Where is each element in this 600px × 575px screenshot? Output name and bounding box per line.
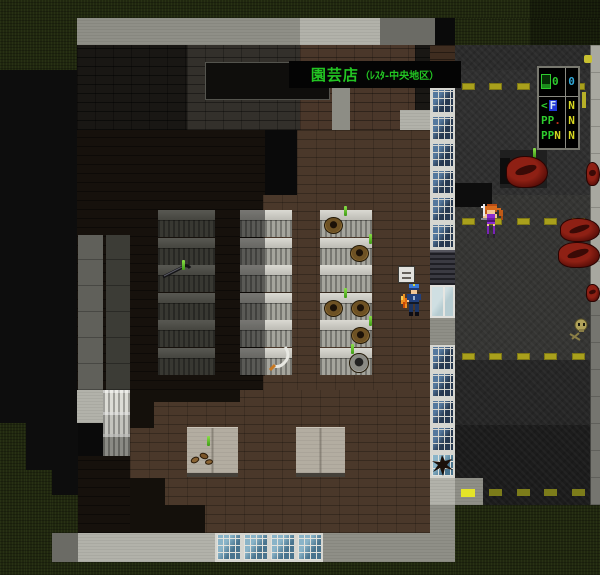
bottomleft-step-1	[26, 423, 78, 470]
hud-cursor: <	[541, 100, 548, 111]
sprout-icon	[344, 288, 347, 298]
corpse	[558, 242, 600, 268]
sickle-icon	[266, 344, 292, 372]
road-dash	[517, 83, 530, 90]
flower-pot-icon	[350, 245, 369, 262]
window-tile	[430, 169, 455, 196]
floor-shadow-3	[130, 478, 165, 533]
shelf-unit	[158, 320, 215, 347]
band-right	[323, 533, 455, 562]
shelf-unit	[158, 293, 215, 320]
hud-row-3: PP. N	[539, 113, 578, 128]
wall-col-concrete-low	[430, 478, 455, 505]
window-tile	[430, 196, 455, 223]
window-tile	[269, 533, 296, 562]
sprout-icon	[369, 316, 372, 326]
band-left	[78, 533, 215, 562]
sprout-icon	[182, 260, 185, 270]
hud-right-value-4: N	[565, 130, 578, 141]
broken-window-hole	[430, 453, 455, 478]
shelf-shadow-overlay	[240, 210, 265, 376]
skull-remains-icon	[566, 316, 592, 342]
window-tile	[296, 533, 323, 562]
grass-bl-4	[52, 562, 78, 575]
window-tile	[430, 115, 455, 142]
road-dash	[489, 83, 502, 90]
location-banner: 園芸店（ﾚｽﾀ-中央地区）	[289, 61, 461, 88]
wall-col-sliver	[430, 318, 455, 345]
hud-row-4: PPN N	[539, 128, 578, 143]
floor-shadow-4	[165, 505, 205, 533]
window-tile	[430, 426, 455, 453]
road-dash	[462, 218, 475, 225]
grass-bottom	[78, 562, 455, 575]
grass-topright-dark	[530, 0, 600, 47]
road-dash	[489, 353, 502, 360]
road-dash-dim	[544, 489, 557, 496]
wall-col-corner	[430, 505, 455, 533]
hud-row-2: <F N	[539, 98, 578, 113]
flower-pot-icon	[324, 217, 343, 234]
window-tile	[430, 88, 455, 115]
hud-left-value-4: PP	[541, 130, 554, 141]
shop-name: 園芸店	[311, 64, 359, 85]
bottomleft-step-2	[52, 470, 78, 495]
window-tile	[242, 533, 269, 562]
hud-divider-v	[565, 68, 566, 148]
seeds-icon	[189, 450, 217, 468]
entry-tile	[400, 110, 430, 132]
flower-pot-icon	[324, 300, 343, 317]
corpse	[506, 156, 548, 188]
placard-icon	[398, 266, 415, 283]
corpse	[560, 218, 600, 242]
npc-police-officer[interactable]	[401, 282, 427, 320]
hud-left-value-3: PP	[541, 115, 554, 126]
road-dash-lit	[461, 489, 475, 497]
hud-selected-cell: F	[549, 100, 558, 111]
corner-tile	[77, 390, 103, 423]
game-viewport[interactable]: 園芸店（ﾚｽﾀ-中央地区） 0 0 <F N PP. N PPN N	[0, 0, 600, 575]
window-tile	[430, 399, 455, 426]
hud-left-value-1: 0	[552, 76, 559, 87]
floor-dark-bottomleft	[77, 456, 130, 533]
grass-bl-2	[26, 470, 52, 575]
road-dash-dim	[489, 489, 502, 496]
road-dash	[544, 353, 557, 360]
window-tile	[215, 533, 242, 562]
hud-row-1: 0 0	[539, 68, 578, 95]
window-tile	[430, 223, 455, 250]
status-hud: 0 0 <F N PP. N PPN N	[537, 66, 580, 150]
player-character-sword-girl[interactable]	[477, 202, 505, 242]
broken-window	[430, 453, 455, 478]
road-low	[455, 360, 590, 425]
shelf-front-2	[103, 412, 130, 434]
window-tile	[430, 142, 455, 169]
crowbar-icon	[160, 262, 192, 280]
floor-shadow-1	[130, 390, 240, 402]
sprout-icon	[344, 206, 347, 216]
area-name: （ﾚｽﾀ-中央地区）	[360, 67, 439, 82]
corpse	[586, 162, 600, 186]
floor-shadow-2	[130, 402, 154, 428]
corpse	[586, 284, 600, 302]
flower-pot-icon	[351, 300, 370, 317]
hud-right-value-1: 0	[565, 76, 578, 87]
shelf-unit	[158, 348, 215, 375]
hud-right-value-3: N	[565, 115, 578, 126]
road-dash	[572, 353, 585, 360]
window-tile	[430, 372, 455, 399]
tall-shelf-b	[106, 235, 130, 390]
road-dash	[544, 218, 557, 225]
window-tile	[430, 345, 455, 372]
roof-band-right	[380, 18, 435, 45]
wall-upper-dark	[77, 45, 187, 130]
road-dash	[462, 83, 475, 90]
shelf-unit	[158, 238, 215, 265]
road-dash	[517, 353, 530, 360]
wall-col-shutter	[430, 250, 455, 285]
hud-divider-h	[539, 96, 578, 97]
grass-top	[0, 0, 600, 18]
hud-dot: .	[554, 115, 561, 126]
street-light-dot	[584, 55, 592, 63]
band-shadow	[52, 533, 78, 562]
sprout-icon	[369, 234, 372, 244]
tall-shelf-a	[78, 235, 103, 390]
hud-left-suffix-4: N	[554, 130, 561, 141]
grass-topleft	[0, 18, 77, 72]
roof-band-lit	[300, 18, 380, 45]
shelf-unit	[158, 210, 215, 237]
grass-bl-3	[52, 495, 78, 533]
grass-bottom-right	[455, 505, 600, 575]
sprout-icon	[351, 344, 354, 354]
sprout-icon	[207, 436, 210, 446]
roof-band-left	[77, 18, 300, 45]
road-dash-dim	[517, 489, 530, 496]
unit-icon	[541, 74, 551, 89]
grass-bl-1	[0, 423, 26, 575]
bucket-icon	[349, 353, 369, 373]
road-dash-dim	[572, 489, 585, 496]
wall-col-pale-window	[430, 285, 455, 318]
left-black-wall	[0, 70, 77, 423]
road-dash	[462, 353, 475, 360]
flower-pot-icon	[351, 327, 370, 344]
display-table-2	[296, 427, 345, 477]
shelf-front-1	[103, 390, 130, 412]
yellow-marker	[582, 92, 586, 108]
road-dash	[517, 218, 530, 225]
hud-right-value-2: N	[565, 100, 578, 111]
shelf-front-3	[103, 434, 130, 456]
